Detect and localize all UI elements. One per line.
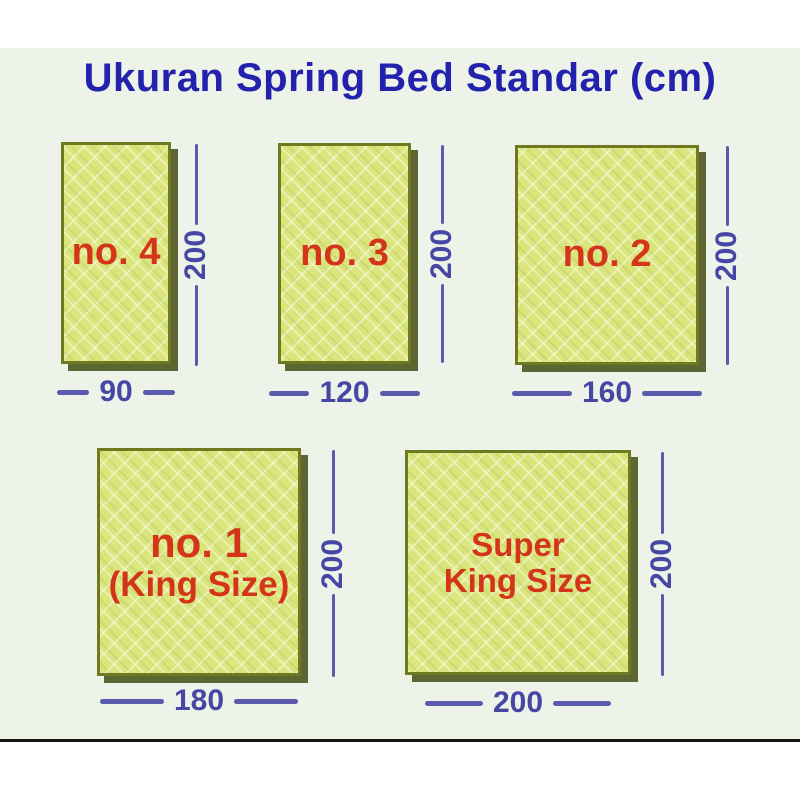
height-value: 200	[316, 538, 350, 588]
height-value: 200	[645, 539, 679, 589]
bed-label-line1: Super	[444, 527, 593, 563]
height-value: 200	[425, 229, 459, 279]
height-dimension-label: 200	[422, 228, 462, 280]
bed-super-king: Super King Size	[405, 450, 631, 675]
bed-label: Super King Size	[444, 527, 593, 598]
height-dimension: 200	[707, 146, 747, 365]
dimension-line	[195, 285, 198, 366]
bed-label: no. 2	[563, 234, 652, 275]
bed-label: no. 3	[300, 233, 389, 274]
width-dimension: 120	[262, 378, 427, 408]
dimension-dash	[143, 390, 175, 395]
bed-label-line1: no. 3	[300, 233, 389, 274]
dimension-line	[332, 450, 335, 534]
width-dimension-label: 160	[582, 378, 632, 408]
bed-label-line2: (King Size)	[109, 566, 290, 604]
dimension-line	[726, 146, 729, 226]
dimension-dash	[269, 391, 309, 396]
bed-label-line2: King Size	[444, 563, 593, 599]
dimension-line	[332, 594, 335, 678]
dimension-line	[661, 452, 664, 534]
height-dimension: 200	[422, 145, 462, 363]
dimension-line	[661, 594, 664, 676]
width-dimension-label: 120	[319, 378, 369, 408]
bed-no-3: no. 3	[278, 143, 411, 364]
height-dimension-label: 200	[313, 538, 353, 590]
bed-no-2: no. 2	[515, 145, 699, 365]
width-dimension: 160	[503, 378, 711, 408]
page-title: Ukuran Spring Bed Standar (cm)	[0, 56, 800, 101]
bed-no-1-king: no. 1 (King Size)	[97, 448, 301, 676]
width-dimension-label: 90	[99, 377, 132, 407]
dimension-dash	[57, 390, 89, 395]
dimension-line	[441, 284, 444, 363]
dimension-dash	[512, 391, 572, 396]
bed-label-line1: no. 4	[72, 232, 161, 273]
height-value: 200	[710, 230, 744, 280]
bed-label-line1: no. 2	[563, 234, 652, 275]
infographic-canvas: Ukuran Spring Bed Standar (cm) no. 4 200…	[0, 0, 800, 800]
height-dimension: 200	[642, 452, 682, 676]
dimension-dash	[234, 699, 298, 704]
dimension-dash	[553, 701, 611, 706]
dimension-line	[441, 145, 444, 224]
height-dimension: 200	[176, 144, 216, 366]
width-dimension: 180	[93, 686, 305, 716]
height-value: 200	[179, 230, 213, 280]
height-dimension-label: 200	[642, 538, 682, 590]
height-dimension-label: 200	[176, 229, 216, 281]
bed-no-4: no. 4	[61, 142, 171, 364]
height-dimension-label: 200	[707, 230, 747, 282]
dimension-dash	[642, 391, 702, 396]
width-dimension: 200	[406, 688, 630, 718]
bed-label: no. 1 (King Size)	[109, 520, 290, 603]
width-dimension: 90	[46, 377, 186, 407]
width-dimension-label: 200	[493, 688, 543, 718]
width-dimension-label: 180	[174, 686, 224, 716]
bed-label-line1: no. 1	[109, 520, 290, 565]
dimension-dash	[100, 699, 164, 704]
bottom-rule	[0, 739, 800, 742]
bed-label: no. 4	[72, 232, 161, 273]
dimension-line	[195, 144, 198, 225]
height-dimension: 200	[313, 450, 353, 677]
dimension-line	[726, 286, 729, 366]
dimension-dash	[380, 391, 420, 396]
dimension-dash	[425, 701, 483, 706]
